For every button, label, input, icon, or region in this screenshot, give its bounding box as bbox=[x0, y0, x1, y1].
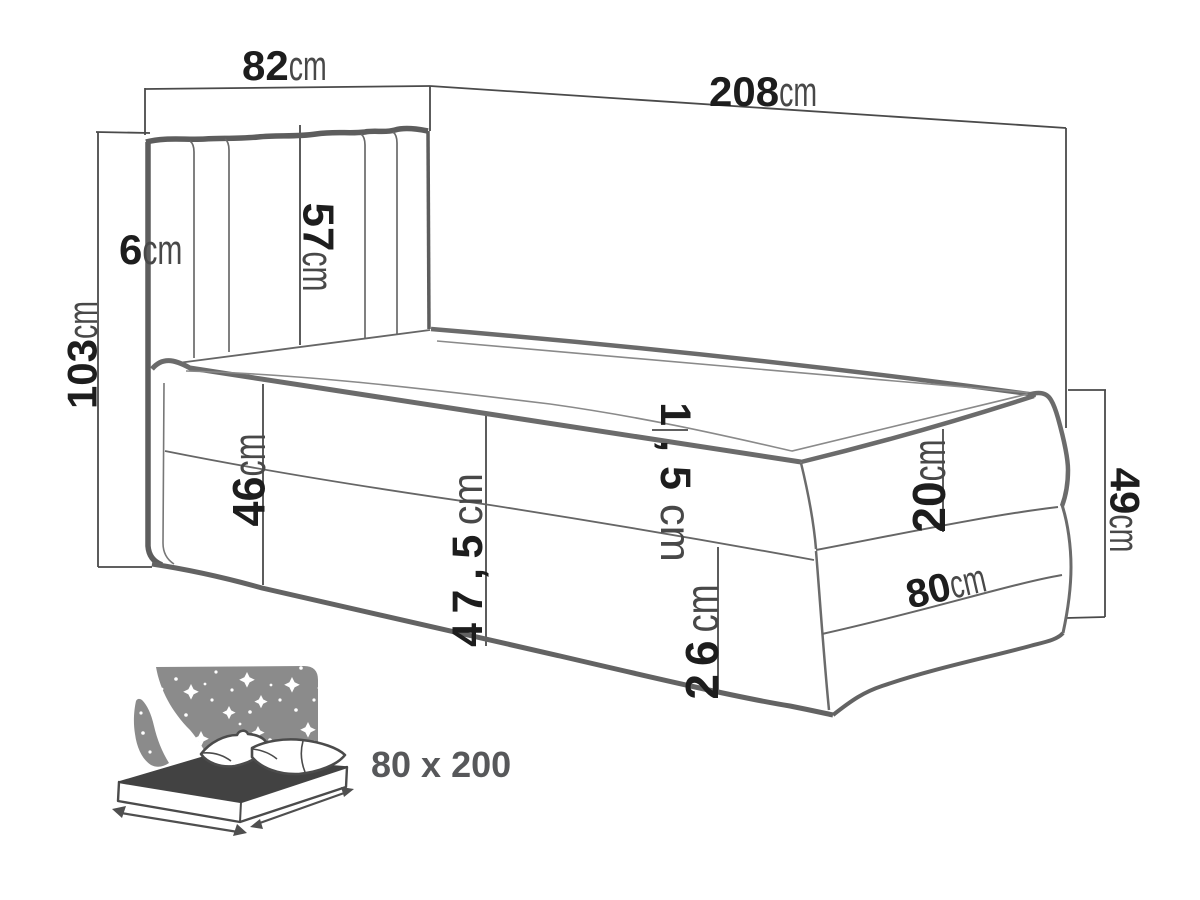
svg-text:47,5cm: 47,5cm bbox=[444, 473, 492, 647]
svg-text:82cm: 82cm bbox=[242, 42, 327, 89]
svg-text:208cm: 208cm bbox=[709, 68, 817, 115]
svg-text:6cm: 6cm bbox=[119, 226, 182, 273]
svg-text:80 x 200: 80 x 200 bbox=[371, 744, 511, 785]
svg-text:103cm: 103cm bbox=[59, 301, 106, 409]
svg-text:49cm: 49cm bbox=[1102, 468, 1149, 553]
svg-text:46cm: 46cm bbox=[224, 433, 275, 526]
svg-text:20cm: 20cm bbox=[903, 439, 955, 532]
svg-text:1,5cm: 1,5cm bbox=[651, 402, 699, 562]
svg-text:57cm: 57cm bbox=[294, 203, 343, 292]
svg-text:26cm: 26cm bbox=[676, 584, 728, 699]
